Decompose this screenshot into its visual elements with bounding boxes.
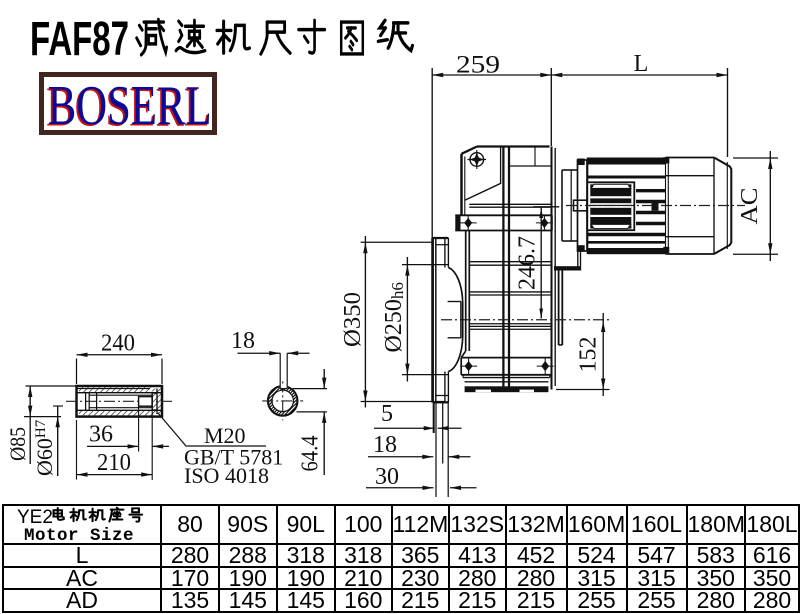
svg-text:259: 259 (456, 52, 500, 79)
svg-text:36: 36 (89, 422, 113, 448)
svg-text:5: 5 (381, 401, 393, 427)
svg-text:ISO 4018: ISO 4018 (184, 463, 269, 488)
svg-text:210: 210 (97, 450, 131, 476)
svg-text:18: 18 (231, 328, 255, 354)
svg-text:Ø350: Ø350 (340, 292, 366, 347)
svg-text:18: 18 (373, 432, 397, 458)
svg-text:64.4: 64.4 (298, 436, 324, 472)
svg-text:Ø85: Ø85 (5, 427, 30, 461)
svg-text:30: 30 (375, 464, 399, 490)
svg-text:152: 152 (576, 337, 602, 373)
svg-text:240: 240 (101, 331, 135, 357)
svg-text:L: L (634, 51, 649, 77)
svg-text:Ø60H7: Ø60H7 (32, 419, 57, 476)
svg-text:Ø250h6: Ø250h6 (381, 282, 407, 352)
svg-text:246.7: 246.7 (514, 236, 540, 290)
svg-text:AC: AC (737, 188, 763, 225)
